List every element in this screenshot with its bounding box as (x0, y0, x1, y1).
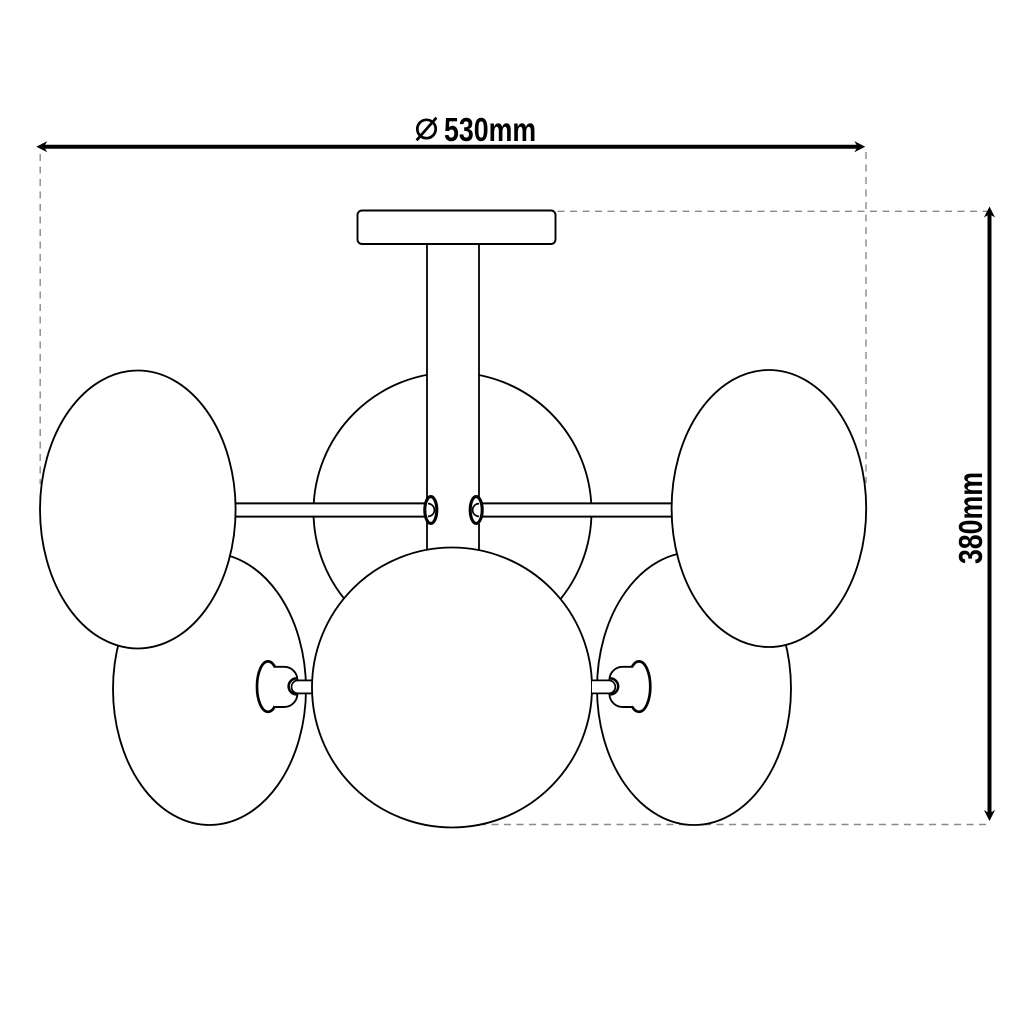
svg-text:530mm: 530mm (444, 112, 536, 148)
svg-text:380mm: 380mm (953, 472, 989, 564)
